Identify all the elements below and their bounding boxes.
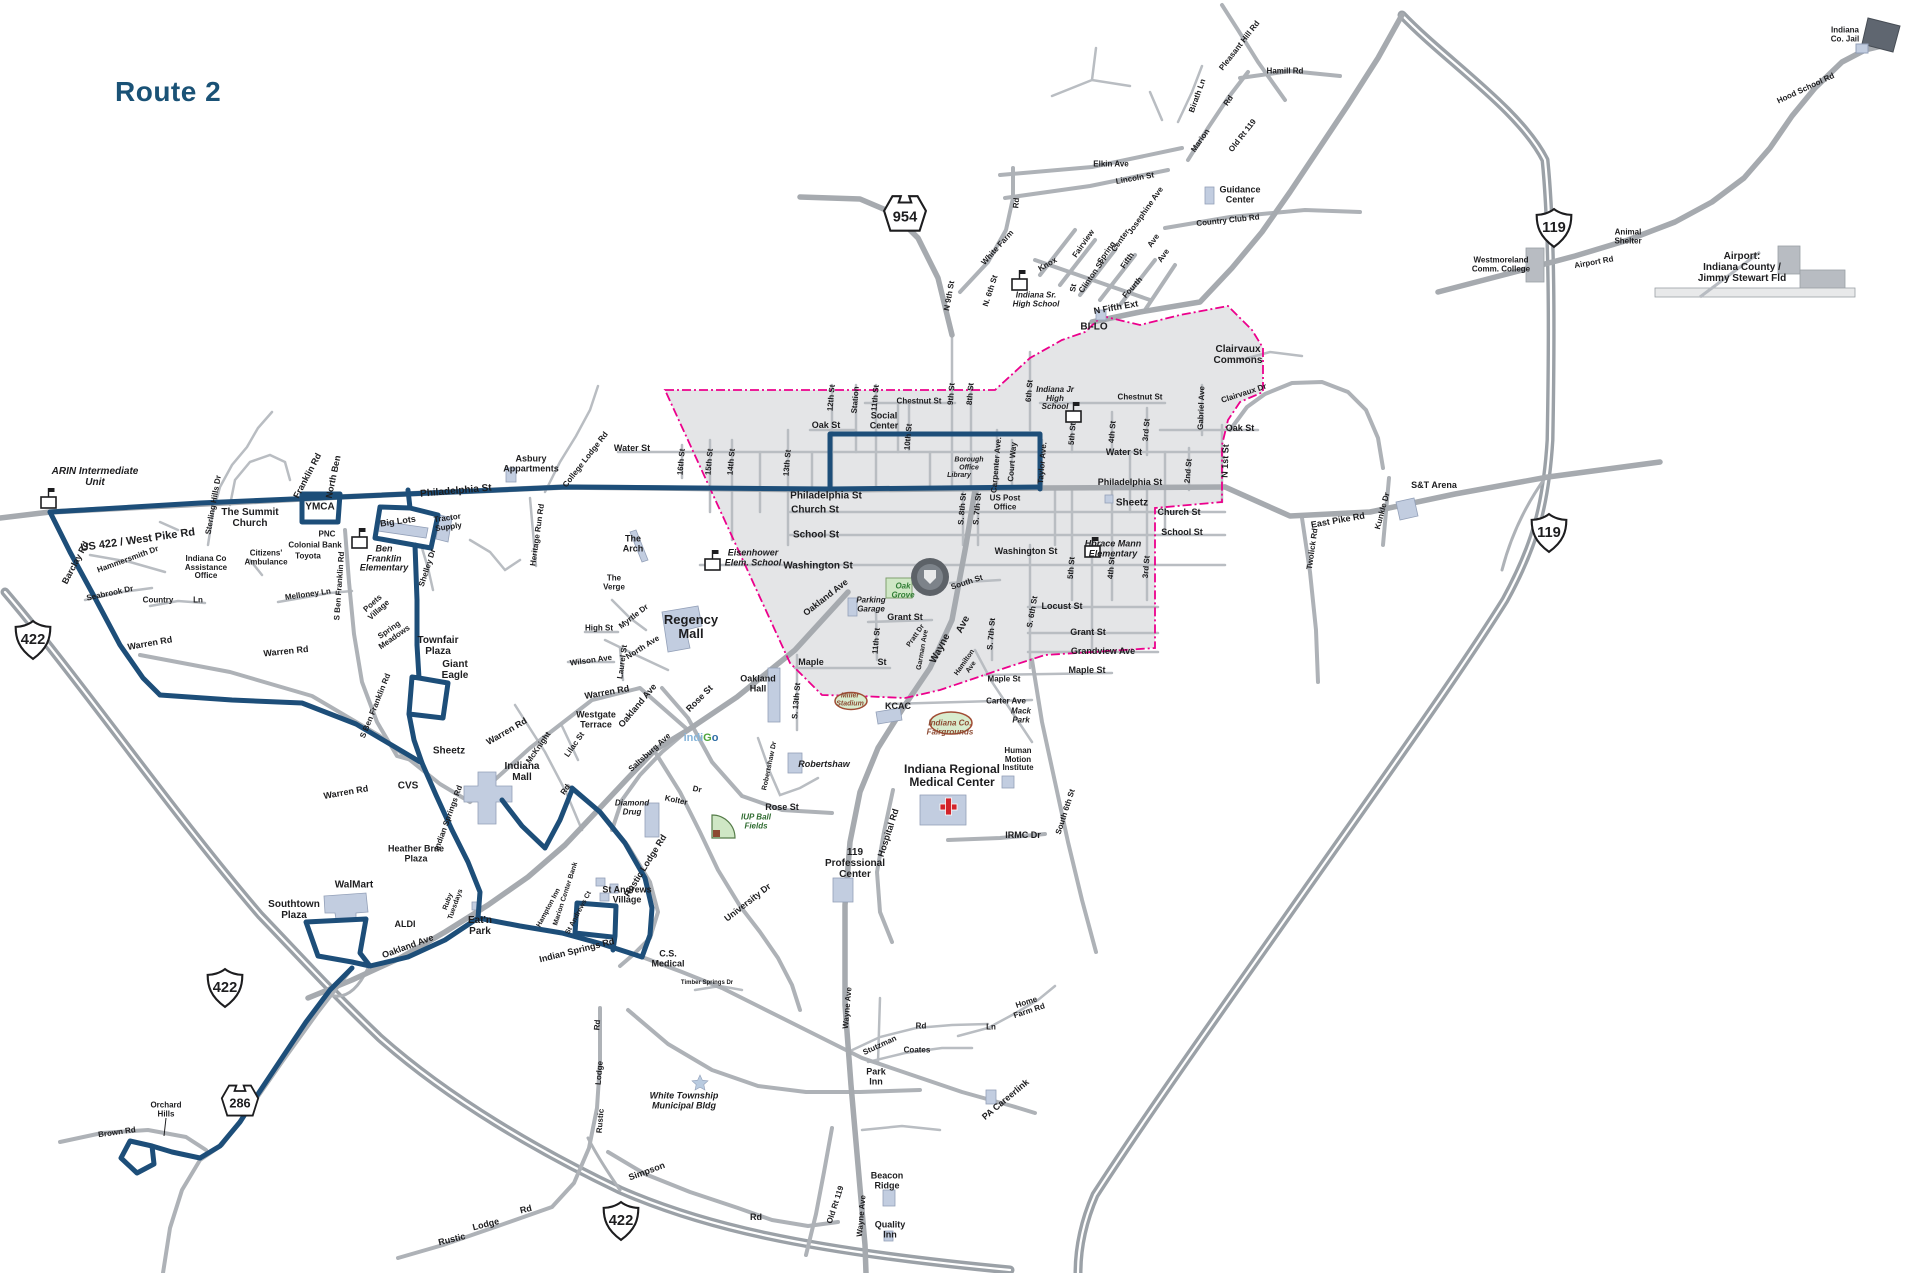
indigo-transit-logo: indiGo: [684, 732, 719, 744]
svg-text:119: 119: [1537, 525, 1561, 541]
page-title: Route 2: [115, 76, 221, 108]
map-canvas: [0, 0, 1920, 1273]
svg-text:422: 422: [213, 980, 238, 996]
us-route-shield-422: 422: [600, 1200, 642, 1242]
municipal-star-icon: [692, 1075, 708, 1090]
svg-text:422: 422: [609, 1213, 634, 1229]
us-route-shield-119: 119: [1533, 207, 1575, 249]
svg-text:954: 954: [893, 209, 918, 225]
us-route-shield-119: 119: [1528, 512, 1570, 554]
logo-text-part: o: [712, 732, 719, 744]
pa-keystone-shield-286: 286: [220, 1081, 260, 1121]
us-route-shield-422: 422: [12, 619, 54, 661]
jail-building: [1856, 18, 1900, 53]
us-route-shield-422: 422: [204, 967, 246, 1009]
iup-seal-icon: [911, 558, 949, 596]
svg-text:422: 422: [21, 632, 46, 648]
logo-text-part: G: [703, 732, 712, 744]
logo-text-part: indi: [684, 732, 704, 744]
svg-text:286: 286: [229, 1095, 250, 1110]
svg-text:119: 119: [1542, 220, 1566, 236]
pa-keystone-shield-954: 954: [882, 191, 928, 237]
route-map: Route 2 ARIN Intermediate UnitUS 422 / W…: [0, 0, 1920, 1273]
